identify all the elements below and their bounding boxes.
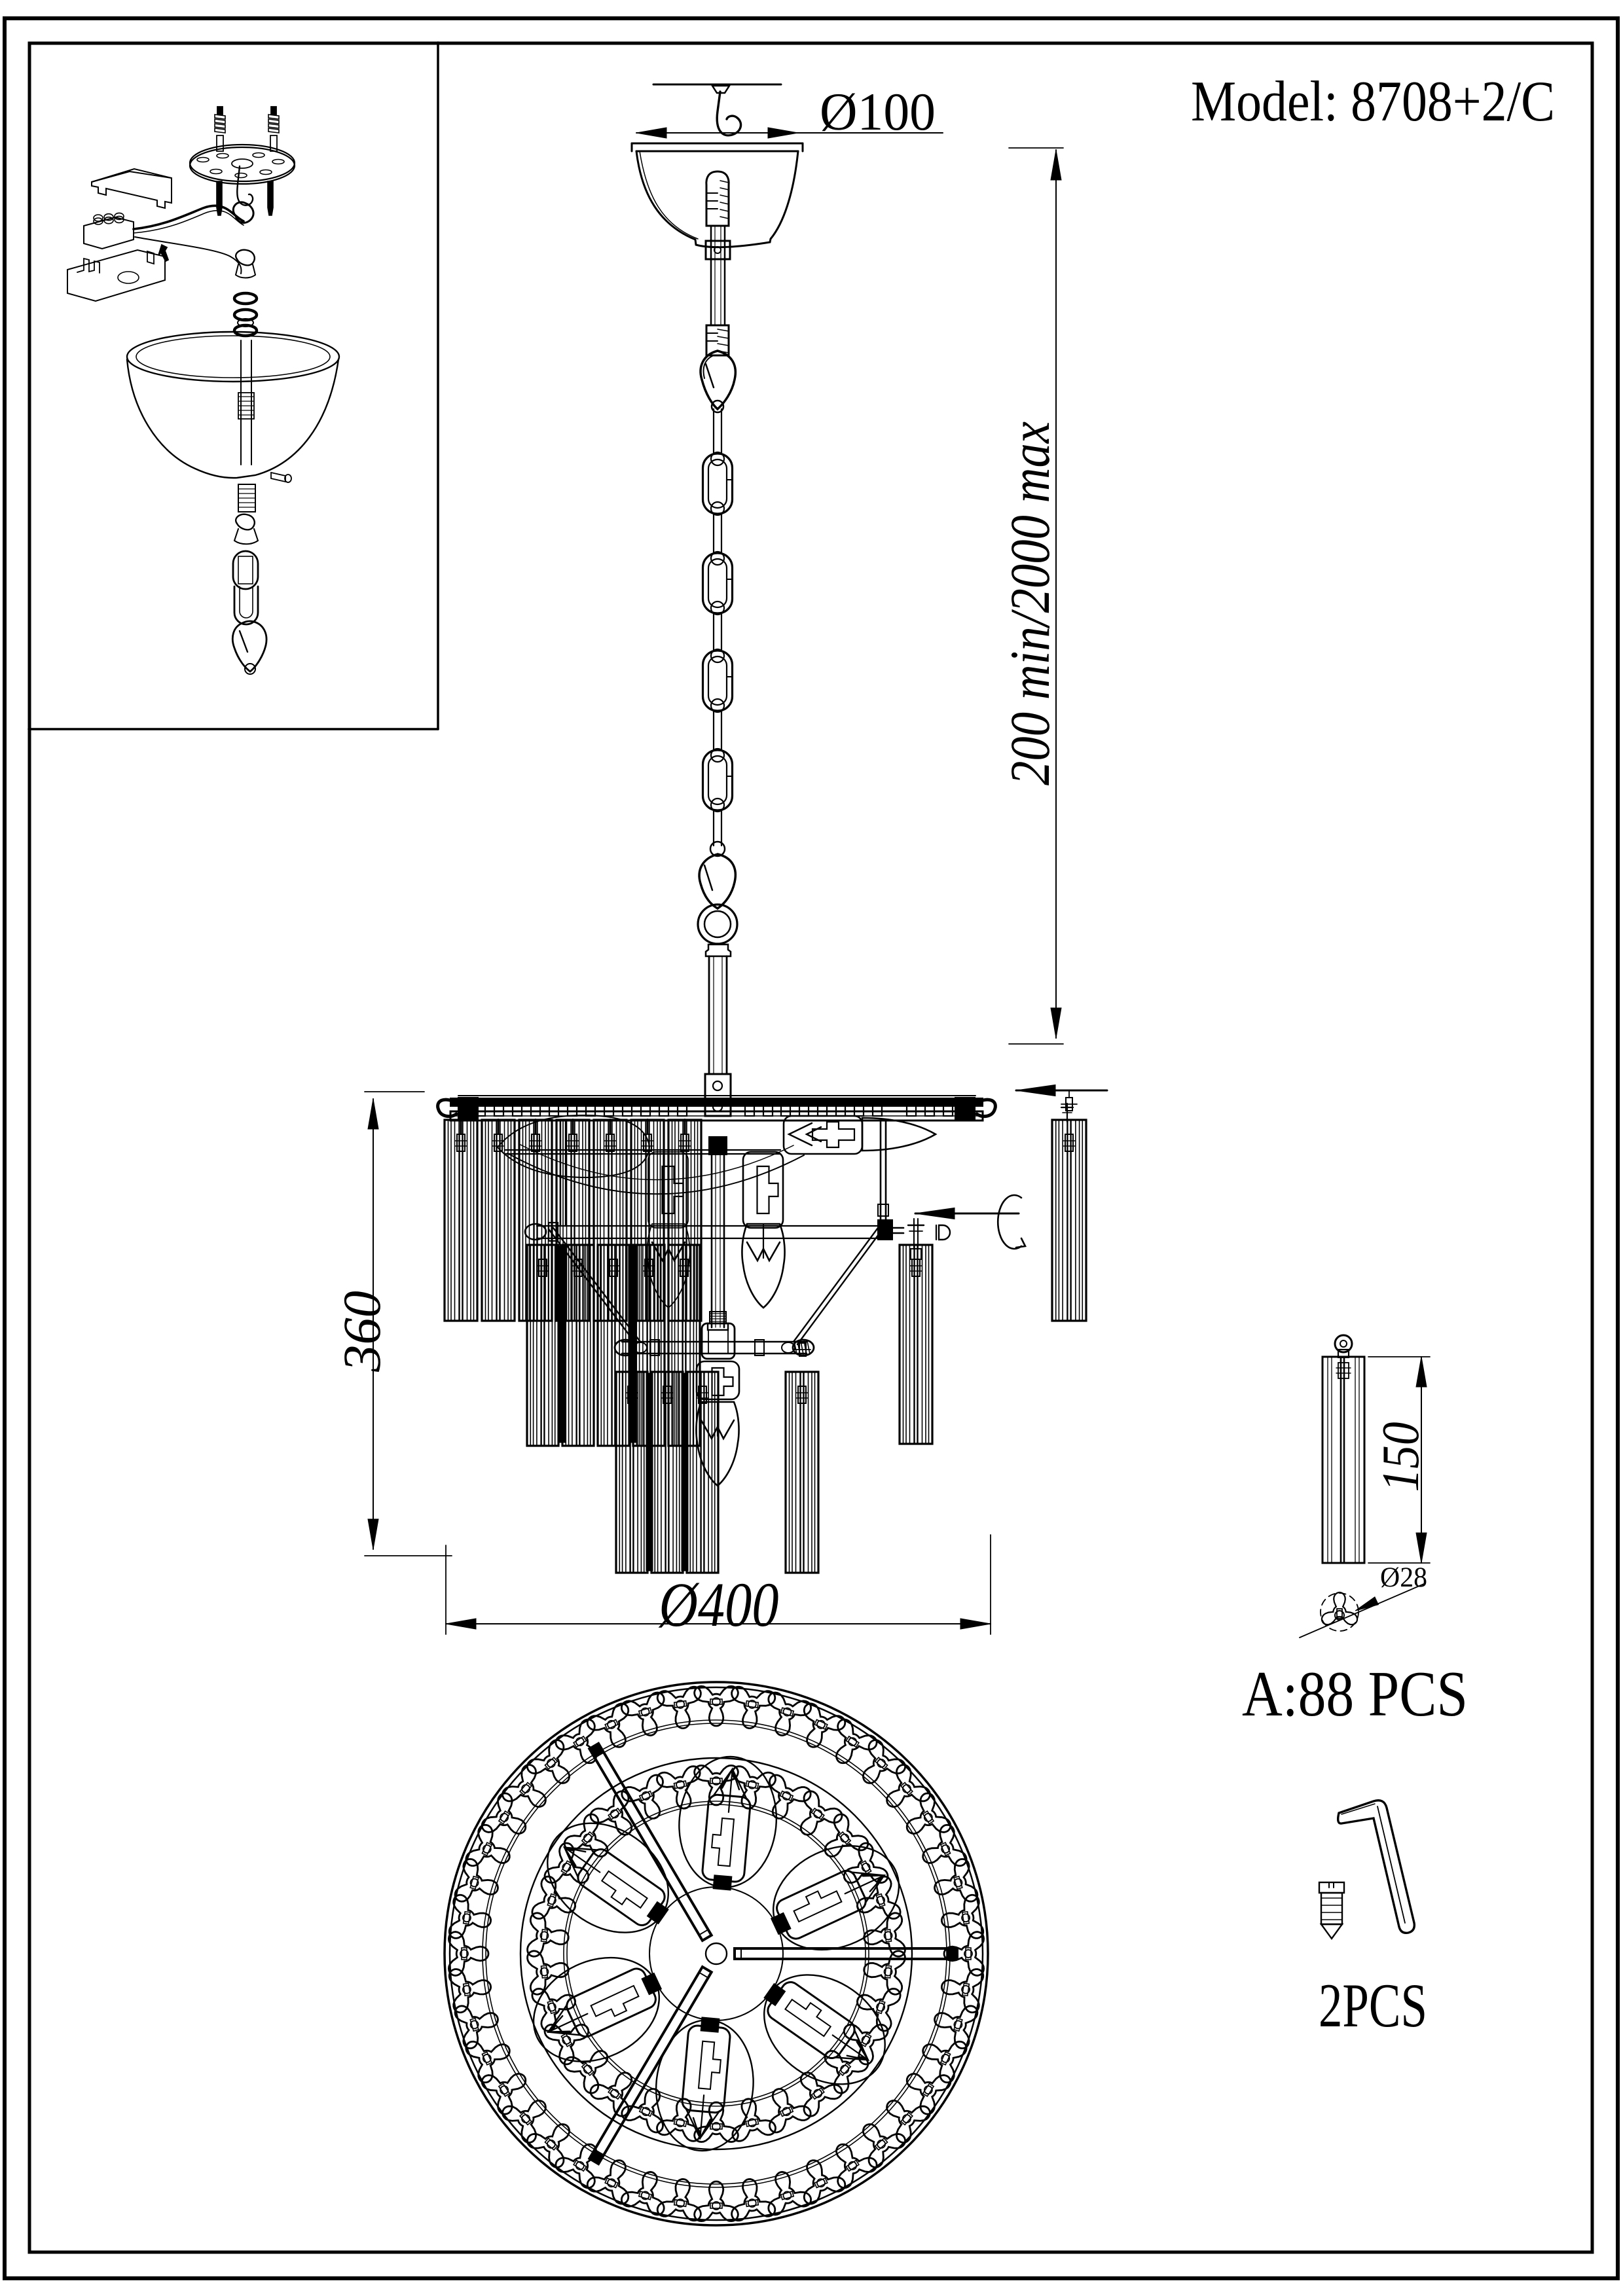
svg-text:Ø400: Ø400 [658, 1570, 779, 1640]
svg-text:Ø100: Ø100 [820, 82, 936, 141]
svg-text:150: 150 [1372, 1422, 1430, 1492]
svg-text:2PCS: 2PCS [1319, 1971, 1427, 2040]
svg-text:Model: 8708+2/C: Model: 8708+2/C [1191, 70, 1555, 134]
svg-text:Ø28: Ø28 [1380, 1562, 1427, 1593]
svg-text:200 min/2000 max: 200 min/2000 max [998, 422, 1061, 785]
svg-text:A:88 PCS: A:88 PCS [1242, 1659, 1468, 1730]
svg-text:360: 360 [332, 1291, 392, 1372]
